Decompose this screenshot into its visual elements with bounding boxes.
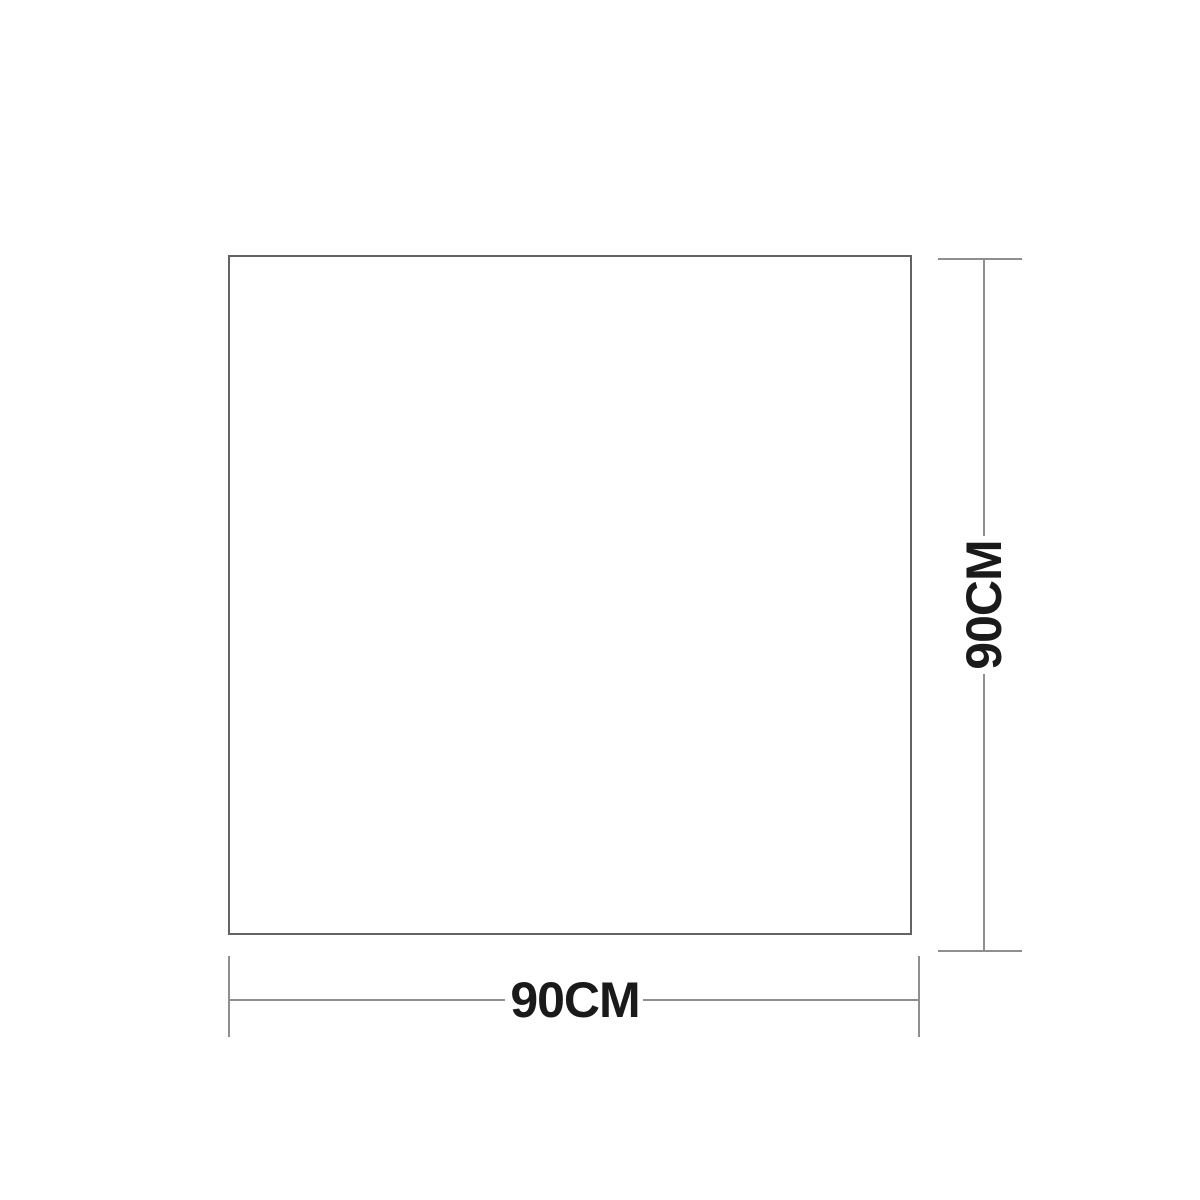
dimension-line-segment-right — [643, 999, 920, 1001]
dimension-end-tick-left — [228, 956, 230, 1037]
height-label: 90CM — [955, 540, 1013, 669]
dimension-line-segment-bottom — [983, 674, 985, 950]
dimension-line-segment-left — [230, 999, 505, 1001]
dimension-line-segment-top — [983, 260, 985, 536]
dimension-end-tick-right — [918, 956, 920, 1037]
width-label: 90CM — [495, 973, 655, 1027]
square-outline — [228, 255, 912, 935]
dimension-end-cap-bottom — [938, 950, 1022, 952]
dimension-end-cap-top — [938, 258, 1022, 260]
dimension-diagram: 90CM 90CM — [0, 0, 1200, 1200]
